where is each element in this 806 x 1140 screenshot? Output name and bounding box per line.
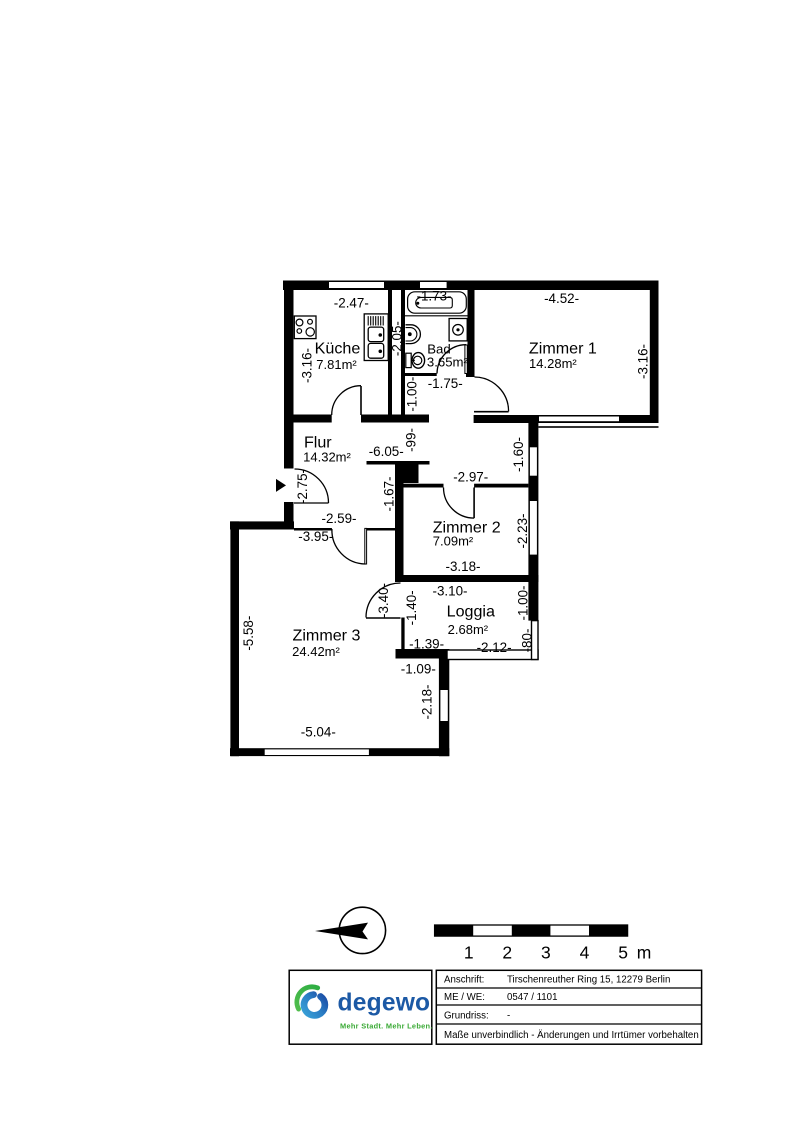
svg-text:-3.10-: -3.10- xyxy=(433,584,468,599)
svg-text:Loggia: Loggia xyxy=(447,602,495,620)
svg-text:-: - xyxy=(507,1010,510,1021)
svg-text:5: 5 xyxy=(618,942,628,962)
svg-text:-80-: -80- xyxy=(519,629,534,653)
svg-text:-2.18-: -2.18- xyxy=(420,685,435,720)
svg-text:-1.09-: -1.09- xyxy=(401,662,436,677)
svg-text:7.81m²: 7.81m² xyxy=(316,357,357,372)
svg-text:Mehr Stadt. Mehr Leben.: Mehr Stadt. Mehr Leben. xyxy=(340,1021,433,1030)
svg-text:-3.95-: -3.95- xyxy=(298,529,333,544)
svg-text:7.09m²: 7.09m² xyxy=(433,534,474,549)
svg-text:-3.16-: -3.16- xyxy=(300,348,315,383)
svg-text:-1.40-: -1.40- xyxy=(404,590,419,625)
svg-text:-1.67-: -1.67- xyxy=(382,477,397,512)
svg-text:-2.23-: -2.23- xyxy=(515,514,530,549)
svg-text:-5.04-: -5.04- xyxy=(301,725,336,740)
svg-text:3.65m²: 3.65m² xyxy=(427,354,469,369)
svg-text:0547 / 1101: 0547 / 1101 xyxy=(507,992,557,1003)
svg-text:-4.52-: -4.52- xyxy=(544,291,579,306)
svg-text:-3.18-: -3.18- xyxy=(446,559,481,574)
svg-text:-1.60-: -1.60- xyxy=(511,437,526,472)
svg-text:Zimmer 3: Zimmer 3 xyxy=(293,627,361,645)
svg-text:ME / WE:: ME / WE: xyxy=(444,992,485,1003)
svg-text:-3.16-: -3.16- xyxy=(636,344,651,379)
svg-text:Grundriss:: Grundriss: xyxy=(444,1010,489,1021)
svg-text:-6.05-: -6.05- xyxy=(369,444,404,459)
svg-text:-2.12-: -2.12- xyxy=(477,640,512,655)
svg-text:-2.59-: -2.59- xyxy=(322,511,357,526)
svg-text:3: 3 xyxy=(541,942,551,962)
svg-text:-2.05-: -2.05- xyxy=(390,321,405,356)
svg-text:14.28m²: 14.28m² xyxy=(529,356,577,371)
svg-text:-2.47-: -2.47- xyxy=(334,295,369,310)
svg-text:m: m xyxy=(637,942,652,962)
svg-text:-1.39-: -1.39- xyxy=(409,637,444,652)
svg-text:Küche: Küche xyxy=(315,340,361,358)
svg-text:Tirschenreuther Ring 15, 12279: Tirschenreuther Ring 15, 12279 Berlin xyxy=(507,975,670,986)
svg-text:-2.75-: -2.75- xyxy=(295,469,310,504)
svg-text:degewo: degewo xyxy=(338,990,431,1017)
svg-text:1: 1 xyxy=(464,942,474,962)
svg-text:-5.58-: -5.58- xyxy=(241,616,256,651)
svg-text:Zimmer 1: Zimmer 1 xyxy=(529,340,597,358)
svg-text:-3.40-: -3.40- xyxy=(376,583,391,618)
svg-text:-1.75-: -1.75- xyxy=(428,376,463,391)
svg-text:Anschrift:: Anschrift: xyxy=(444,975,484,986)
svg-text:-99-: -99- xyxy=(404,428,419,452)
svg-text:4: 4 xyxy=(580,942,590,962)
svg-text:24.42m²: 24.42m² xyxy=(292,644,340,659)
svg-text:-1.73-: -1.73- xyxy=(417,288,452,303)
svg-text:-1.00-: -1.00- xyxy=(405,377,420,412)
svg-text:-1.00-: -1.00- xyxy=(516,586,531,621)
svg-text:Maße unverbindlich - Änderunge: Maße unverbindlich - Änderungen und Irrt… xyxy=(444,1030,699,1041)
svg-text:2: 2 xyxy=(502,942,512,962)
svg-text:14.32m²: 14.32m² xyxy=(303,449,351,464)
svg-text:2.68m²: 2.68m² xyxy=(448,622,489,637)
svg-text:-2.97-: -2.97- xyxy=(453,469,488,484)
